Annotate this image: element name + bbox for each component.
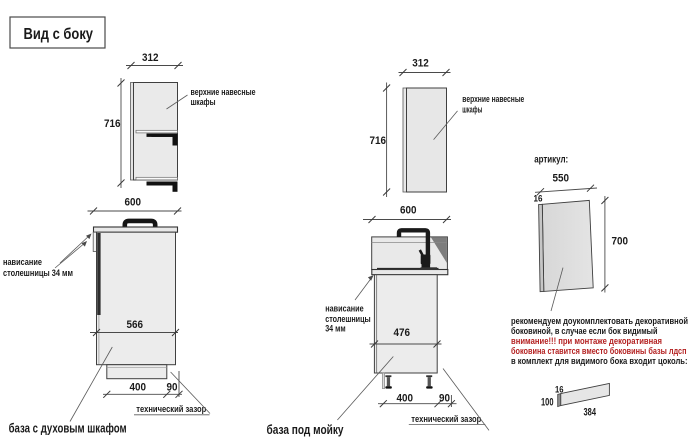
svg-text:716: 716	[370, 135, 387, 147]
svg-text:шкафы: шкафы	[462, 105, 482, 116]
svg-text:400: 400	[397, 392, 414, 404]
svg-text:100: 100	[541, 397, 554, 409]
svg-text:база с духовым шкафом: база с духовым шкафом	[9, 422, 127, 436]
svg-text:90: 90	[439, 392, 450, 404]
svg-text:боковина ставится вместо боков: боковина ставится вместо боковины базы л…	[511, 346, 687, 356]
svg-text:нависание: нависание	[325, 304, 364, 315]
svg-text:34 мм: 34 мм	[325, 324, 346, 335]
svg-text:566: 566	[127, 319, 144, 331]
svg-text:база под мойку: база под мойку	[267, 423, 344, 437]
svg-text:внимание!!! при монтаже декора: внимание!!! при монтаже декоративная	[511, 336, 662, 346]
svg-text:столешницы 34 мм: столешницы 34 мм	[3, 268, 73, 279]
svg-text:технический зазор: технический зазор	[136, 404, 206, 415]
svg-text:артикул:: артикул:	[534, 155, 568, 166]
svg-text:384: 384	[584, 407, 597, 419]
svg-text:550: 550	[553, 173, 570, 185]
svg-text:716: 716	[104, 118, 121, 130]
svg-text:476: 476	[394, 327, 411, 339]
svg-text:400: 400	[130, 381, 147, 393]
svg-text:600: 600	[400, 205, 417, 217]
svg-text:700: 700	[612, 236, 629, 248]
svg-text:верхние навесные: верхние навесные	[462, 94, 524, 105]
svg-text:рекомендуем доукомплектовать д: рекомендуем доукомплектовать декоративно…	[511, 316, 688, 326]
svg-text:16: 16	[555, 385, 564, 395]
svg-text:Вид с боку: Вид с боку	[24, 26, 94, 43]
svg-text:312: 312	[412, 58, 429, 70]
svg-text:600: 600	[125, 197, 142, 209]
svg-text:в комплект для видимого бока в: в комплект для видимого бока входит цоко…	[511, 356, 688, 366]
svg-text:технический зазор: технический зазор	[411, 414, 481, 425]
svg-text:16: 16	[534, 194, 543, 204]
svg-text:нависание: нависание	[3, 257, 42, 268]
svg-text:312: 312	[142, 52, 159, 64]
svg-text:90: 90	[167, 381, 178, 393]
svg-text:боковиной, в случае если бок в: боковиной, в случае если бок видимый	[511, 326, 658, 336]
svg-text:шкафы: шкафы	[191, 97, 216, 108]
